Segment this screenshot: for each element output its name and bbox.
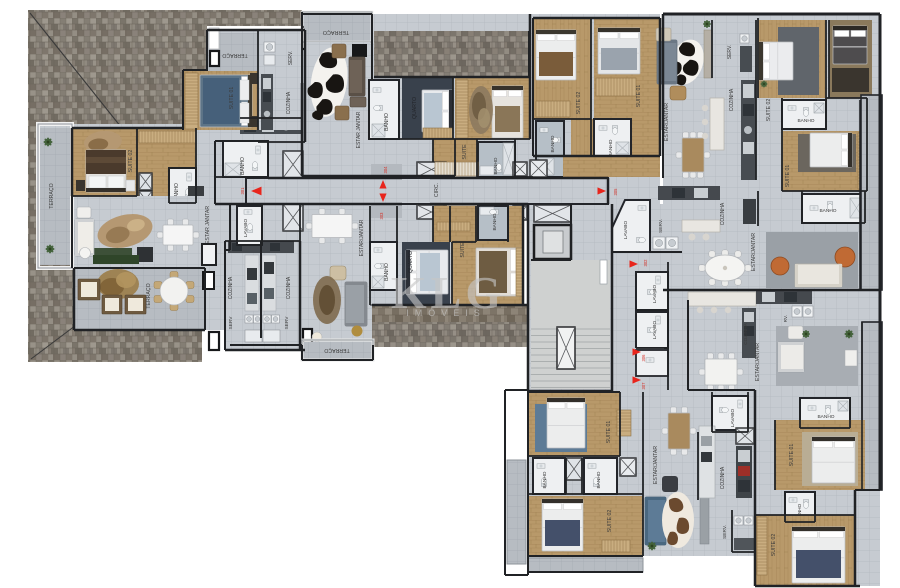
svg-text:307: 307 <box>641 382 646 390</box>
svg-text:BANHO: BANHO <box>542 471 548 488</box>
svg-text:LAVABO: LAVABO <box>652 284 658 303</box>
svg-text:304: 304 <box>383 166 388 174</box>
svg-text:SUITE 01: SUITE 01 <box>636 85 642 108</box>
svg-text:CIRC.: CIRC. <box>434 183 440 197</box>
svg-text:IMÓVEIS: IMÓVEIS <box>406 308 486 318</box>
svg-text:SUITE 02: SUITE 02 <box>128 150 134 173</box>
svg-text:LAVABO: LAVABO <box>730 408 736 427</box>
svg-text:COZINHA: COZINHA <box>729 88 735 111</box>
svg-text:LAVABO: LAVABO <box>652 320 658 339</box>
svg-text:COZINHA: COZINHA <box>720 466 726 489</box>
svg-text:COZINHA: COZINHA <box>286 276 292 299</box>
svg-text:305: 305 <box>613 188 618 196</box>
svg-text:SUITE 02: SUITE 02 <box>766 99 772 122</box>
svg-text:LAVABO: LAVABO <box>243 218 249 237</box>
svg-text:SUITE: SUITE <box>462 144 468 160</box>
svg-text:COZINHA: COZINHA <box>228 276 234 299</box>
svg-text:SERV.: SERV. <box>288 51 294 65</box>
svg-text:301: 301 <box>240 187 245 195</box>
svg-text:SUITE 01: SUITE 01 <box>229 87 235 110</box>
svg-text:SUITE 01: SUITE 01 <box>606 421 612 444</box>
svg-text:COZINHA: COZINHA <box>286 91 292 114</box>
svg-text:BANHO: BANHO <box>596 471 602 488</box>
svg-text:BANHO: BANHO <box>797 118 814 124</box>
svg-text:SERV: SERV <box>228 316 234 330</box>
svg-text:SUITE 01: SUITE 01 <box>785 165 791 188</box>
svg-text:ESTAR/JANTAR: ESTAR/JANTAR <box>653 446 659 484</box>
svg-text:SERV: SERV <box>284 316 290 330</box>
svg-text:BANHO: BANHO <box>384 263 390 281</box>
svg-text:ESTAR/JANTAR: ESTAR/JANTAR <box>359 219 365 256</box>
svg-text:BANHO: BANHO <box>817 414 834 420</box>
svg-text:SERV.: SERV. <box>722 525 728 539</box>
svg-text:ESTAR/JANTAR: ESTAR/JANTAR <box>755 343 761 381</box>
svg-text:SUITE 01: SUITE 01 <box>789 444 795 467</box>
svg-text:306: 306 <box>641 354 646 362</box>
svg-text:TERRAÇO: TERRAÇO <box>324 347 349 353</box>
svg-text:SUITE: SUITE <box>460 242 466 258</box>
svg-text:BANHO: BANHO <box>384 113 390 131</box>
svg-text:303: 303 <box>379 212 384 220</box>
svg-text:SUITE 02: SUITE 02 <box>771 534 777 557</box>
svg-text:COZINHA: COZINHA <box>743 322 749 344</box>
svg-text:ESTAR/JANTAR: ESTAR/JANTAR <box>664 103 670 141</box>
svg-text:ESTAR/JANTAR: ESTAR/JANTAR <box>751 233 757 271</box>
svg-text:TERRAÇO: TERRAÇO <box>323 29 349 35</box>
svg-text:SERV.: SERV. <box>727 45 733 59</box>
svg-text:LAVABO: LAVABO <box>623 220 629 239</box>
svg-text:BANHO: BANHO <box>240 157 246 175</box>
svg-text:COZINHA: COZINHA <box>720 202 726 225</box>
svg-text:BANHO: BANHO <box>493 157 499 174</box>
svg-text:302: 302 <box>643 259 648 267</box>
svg-text:ESTAR JANTAR: ESTAR JANTAR <box>356 111 362 148</box>
svg-text:QUARTO: QUARTO <box>412 97 418 119</box>
svg-text:BANHO: BANHO <box>819 208 836 214</box>
svg-text:TERRAÇO: TERRAÇO <box>146 283 152 308</box>
svg-text:TERRAÇO: TERRAÇO <box>222 52 247 58</box>
svg-text:BANHO: BANHO <box>550 135 556 152</box>
svg-text:TERRAÇO: TERRAÇO <box>49 183 55 208</box>
svg-text:SERV.: SERV. <box>658 219 664 233</box>
svg-text:ESTAR JANTAR: ESTAR JANTAR <box>205 206 211 244</box>
svg-text:BANHO: BANHO <box>492 213 498 230</box>
svg-text:SUITE 02: SUITE 02 <box>576 92 582 115</box>
svg-text:BANHO: BANHO <box>608 139 614 156</box>
svg-text:SUITE 02: SUITE 02 <box>607 510 613 533</box>
